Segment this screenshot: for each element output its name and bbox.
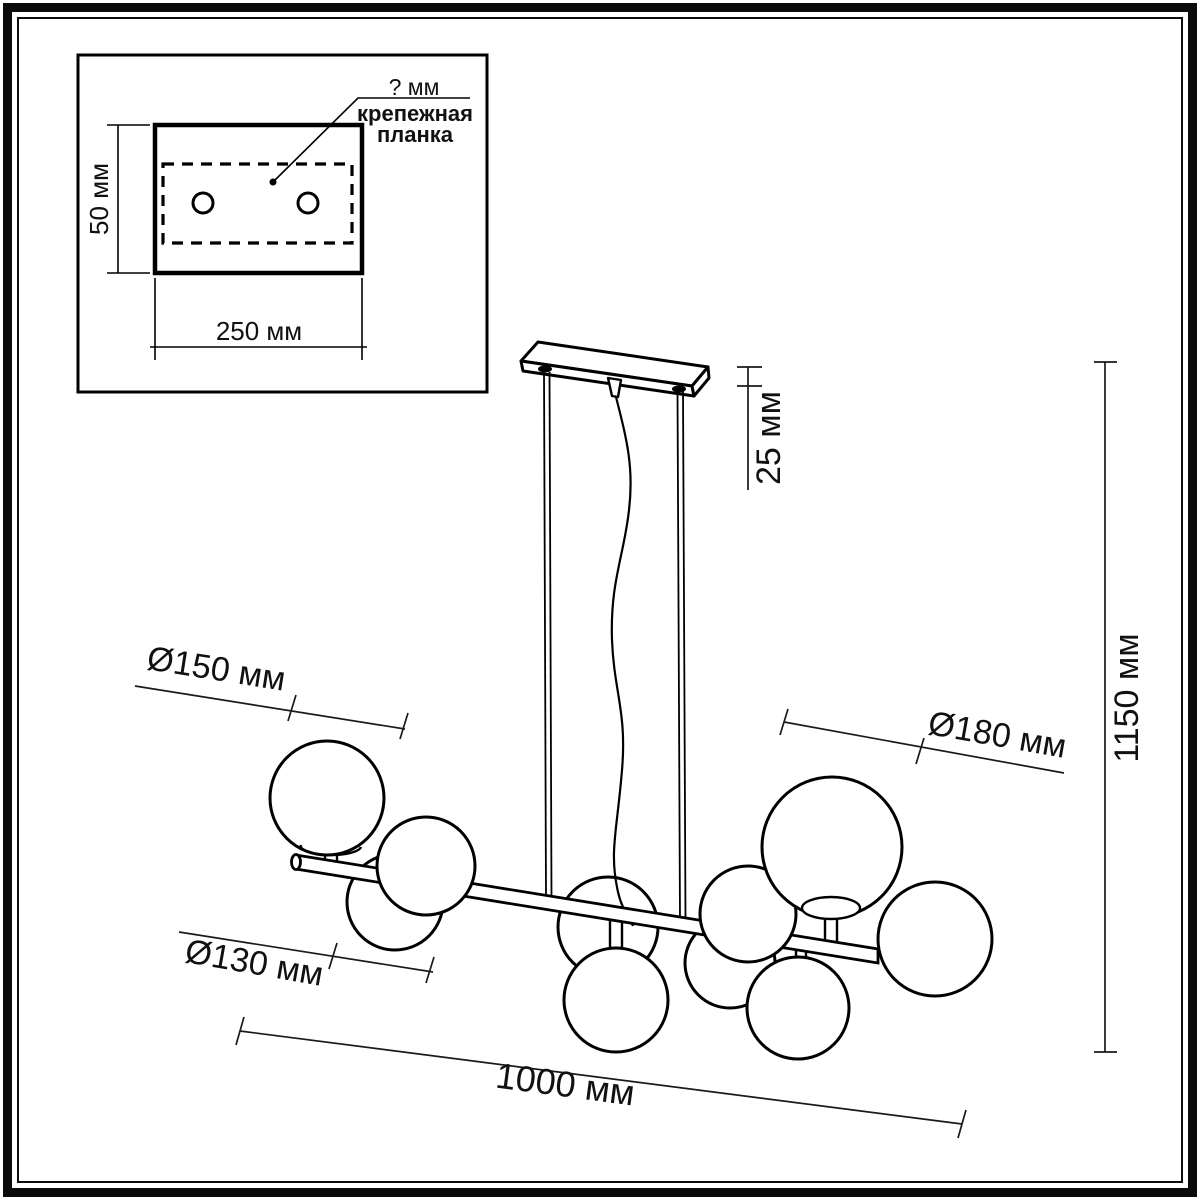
overall-length-label: 1000 мм: [494, 1055, 638, 1114]
technical-drawing: 50 мм 250 мм ? мм крепежная планка: [0, 0, 1200, 1200]
rod-right-line1: [678, 391, 681, 920]
rod-left-line1: [544, 371, 546, 898]
power-cable: [612, 397, 633, 926]
cable-connector: [608, 378, 621, 397]
screw-hole-right: [298, 193, 318, 213]
plate-width-label: 250 мм: [216, 316, 302, 346]
inset-labels: 50 мм 250 мм ? мм крепежная планка: [84, 74, 473, 346]
globe-150-top-left: [270, 741, 384, 855]
globe-front-left: [377, 817, 475, 915]
globe-large-label: Ø180 мм: [925, 704, 1069, 766]
plate-height-label: 50 мм: [84, 163, 114, 235]
hole-spacing-label: ? мм: [389, 74, 440, 100]
globe-bottom-right: [747, 957, 849, 1059]
canopy-drop-label: 25 мм: [750, 391, 788, 485]
mounting-plate: [155, 125, 362, 273]
globe-small-label: Ø130 мм: [182, 932, 326, 994]
bracket-label-line2: планка: [377, 122, 454, 147]
overall-height-label: 1150 мм: [1108, 633, 1146, 762]
globe-far-right: [878, 882, 992, 996]
bar-end-cap: [292, 855, 301, 870]
mounting-bracket-dashed: [163, 164, 352, 243]
globe-medium-label: Ø150 мм: [145, 639, 289, 698]
screw-hole-left: [193, 193, 213, 213]
canopy-screw-left: [538, 366, 552, 373]
globe-130-bottom-center: [564, 948, 668, 1052]
drawing-page: 50 мм 250 мм ? мм крепежная планка: [0, 0, 1200, 1200]
rod-right-line2: [683, 391, 686, 920]
globe-180-neck: [802, 897, 860, 919]
rod-left-line2: [550, 372, 552, 898]
